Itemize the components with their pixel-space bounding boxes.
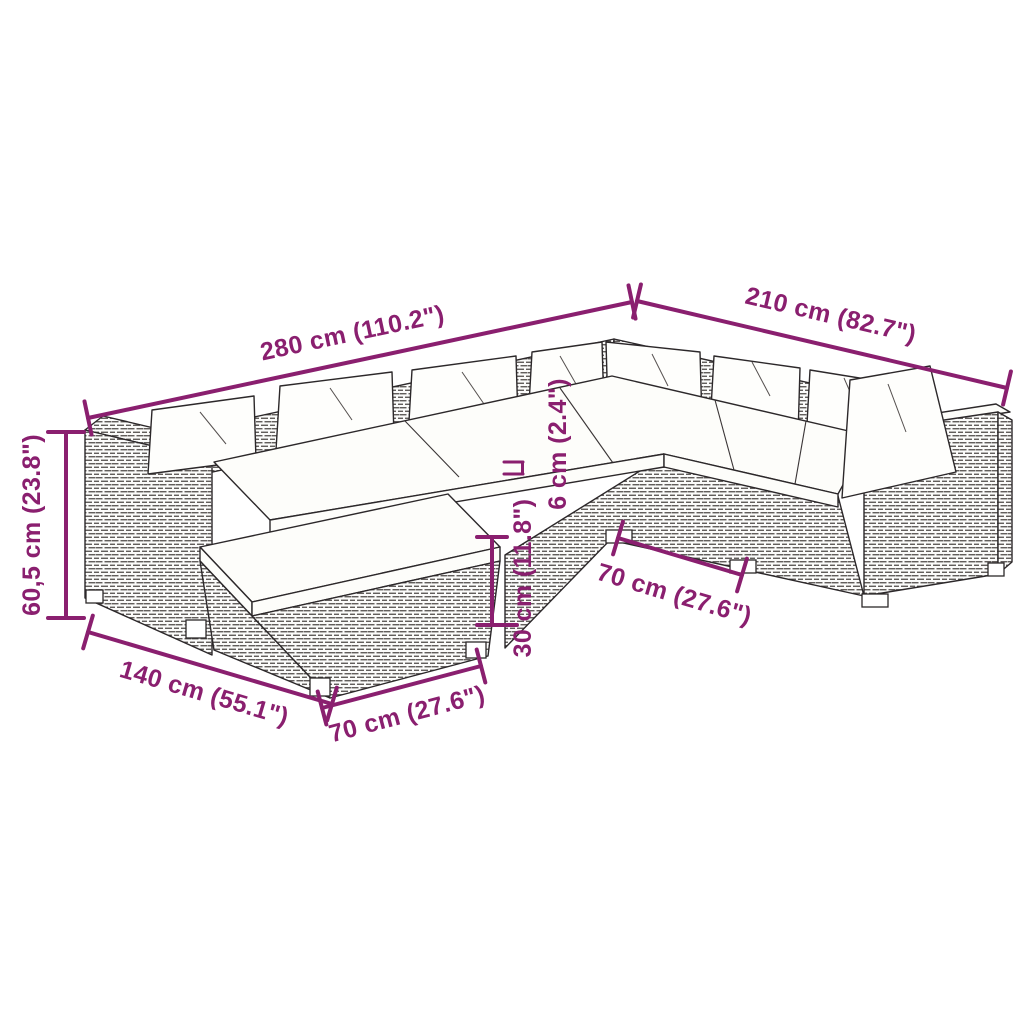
dim-label-210: 210 cm (82.7") — [743, 282, 919, 349]
dimension-height: 60,5 cm (23.8") — [18, 432, 84, 618]
foot-right-arm-front — [862, 594, 888, 607]
dim-label-6: 6 cm (2.4") — [544, 378, 572, 510]
foot-right-arm-side — [988, 563, 1004, 576]
right-armrest-side — [998, 412, 1012, 574]
dimension-diagram-svg: 280 cm (110.2") 210 cm (82.7") 60,5 cm (… — [0, 0, 1024, 1024]
foot-footstool-left — [186, 620, 206, 638]
dim-label-280: 280 cm (110.2") — [258, 300, 447, 366]
footstool — [200, 494, 500, 698]
product-dimension-diagram: 280 cm (110.2") 210 cm (82.7") 60,5 cm (… — [0, 0, 1024, 1024]
dim-label-30: 30 cm (11.8") — [509, 499, 537, 658]
foot-left-arm — [86, 590, 103, 603]
dim-label-60-5: 60,5 cm (23.8") — [18, 434, 46, 616]
